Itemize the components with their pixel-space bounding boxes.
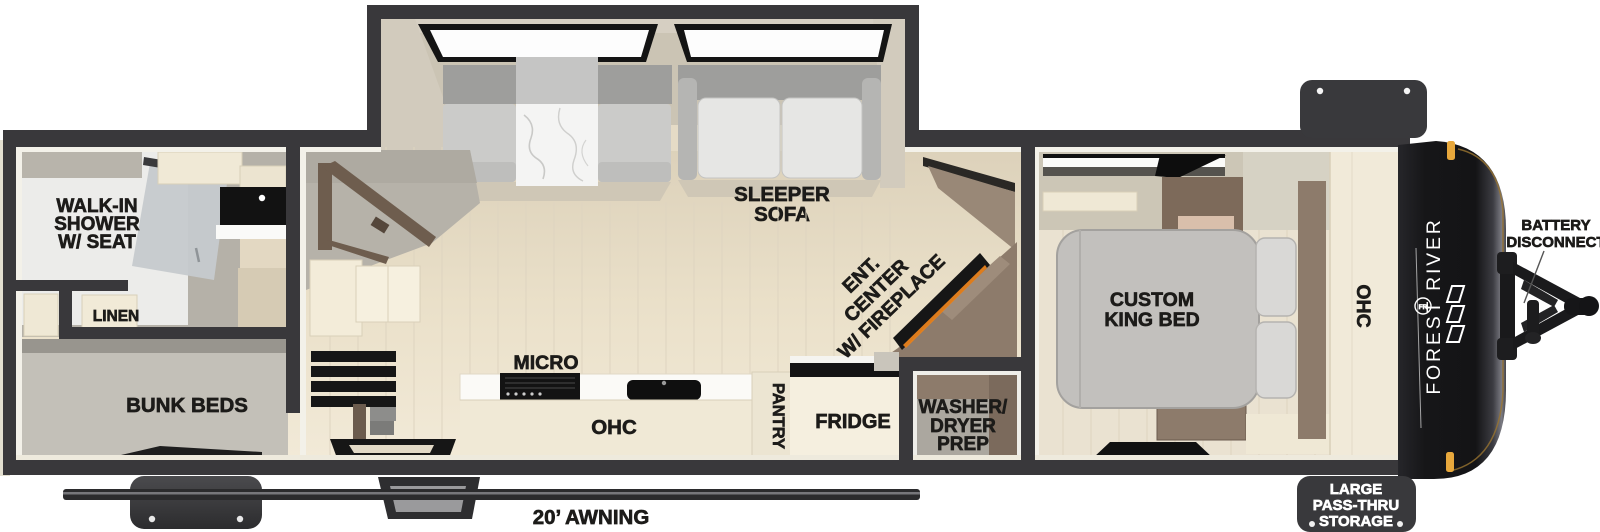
svg-text:WASHER/: WASHER/ [919,397,1008,418]
svg-text:DISCONNECT: DISCONNECT [1506,234,1600,251]
svg-text:KING BED: KING BED [1104,309,1199,331]
svg-text:SOFA: SOFA [754,203,810,226]
svg-text:OHC: OHC [1352,284,1374,327]
svg-text:20’ AWNING: 20’ AWNING [533,506,650,529]
svg-text:STORAGE: STORAGE [1319,513,1393,530]
svg-text:MICRO: MICRO [514,352,579,374]
svg-text:OHC: OHC [591,416,637,439]
svg-text:LARGE: LARGE [1330,481,1383,498]
svg-text:PREP: PREP [937,434,989,455]
svg-text:CUSTOM: CUSTOM [1110,289,1194,311]
svg-text:FRIDGE: FRIDGE [815,411,891,433]
svg-text:PANTRY: PANTRY [769,383,787,449]
svg-text:BATTERY: BATTERY [1521,217,1590,234]
svg-text:PASS-THRU: PASS-THRU [1313,497,1399,514]
svg-text:FOREST RIVER: FOREST RIVER [1423,217,1445,394]
svg-text:W/ SEAT: W/ SEAT [58,232,136,253]
svg-text:BUNK BEDS: BUNK BEDS [126,394,248,417]
svg-text:LINEN: LINEN [93,308,140,325]
